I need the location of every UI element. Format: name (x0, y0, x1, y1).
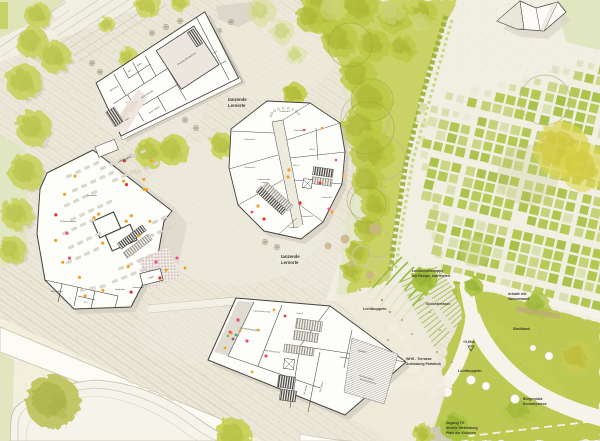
svg-text:Büro Lehrerin: Büro Lehrerin (51, 290, 62, 293)
svg-text:Lichtkuppeln: Lichtkuppeln (363, 307, 387, 311)
svg-text:Unterricht 2: Unterricht 2 (322, 196, 334, 199)
svg-text:Anbindung Parkdeck: Anbindung Parkdeck (406, 362, 441, 366)
svg-text:Unterricht 4: Unterricht 4 (245, 166, 257, 169)
svg-text:Bürgerplatz: Bürgerplatz (523, 397, 543, 401)
svg-text:Kl. 1: Kl. 1 (84, 302, 88, 304)
svg-text:Stadtbank: Stadtbank (513, 327, 530, 331)
svg-text:Südosterrasse: Südosterrasse (426, 302, 450, 306)
svg-text:+3,60m: +3,60m (463, 340, 475, 344)
svg-text:mit Rampe, barrierefrei: mit Rampe, barrierefrei (412, 274, 450, 278)
svg-text:Unterricht 8: Unterricht 8 (302, 215, 314, 218)
svg-text:Lernorte: Lernorte (281, 260, 299, 265)
svg-text:Unterricht 7: Unterricht 7 (289, 226, 301, 229)
svg-text:Unterricht 1: Unterricht 1 (280, 110, 292, 113)
svg-text:Wasserwand: Wasserwand (508, 297, 529, 301)
svg-text:direkte Verbindung: direkte Verbindung (446, 426, 478, 430)
svg-text:Sporthalle: Sporthalle (87, 194, 98, 197)
svg-text:Unt. 6: Unt. 6 (309, 148, 315, 151)
svg-text:tanzende: tanzende (228, 97, 247, 102)
svg-text:WHS - Terrasse: WHS - Terrasse (406, 357, 432, 361)
svg-text:Foyer 2: Foyer 2 (297, 312, 303, 315)
svg-text:Lichtkuppeln: Lichtkuppeln (458, 369, 482, 373)
svg-text:Lernorte: Lernorte (228, 103, 246, 108)
svg-text:Luftraum über: Luftraum über (258, 178, 271, 181)
svg-text:Galeriestufen: Galeriestufen (132, 286, 143, 289)
svg-text:Landschaftstreppe: Landschaftstreppe (412, 269, 443, 273)
svg-text:tanzende: tanzende (281, 254, 300, 259)
svg-text:Konradywiese: Konradywiese (523, 402, 547, 406)
svg-text:Platz der Kulturen: Platz der Kulturen (446, 431, 476, 435)
svg-text:Unterricht 5: Unterricht 5 (245, 138, 257, 141)
svg-text:Garderoben: Garderoben (115, 288, 125, 291)
svg-text:Arkade mit: Arkade mit (508, 292, 527, 296)
svg-text:KL Ansammlung: KL Ansammlung (60, 220, 77, 223)
svg-text:Zugang TG: Zugang TG (446, 421, 465, 425)
svg-text:WC d: WC d (293, 165, 299, 167)
svg-text:Foyer: Foyer (261, 181, 267, 184)
